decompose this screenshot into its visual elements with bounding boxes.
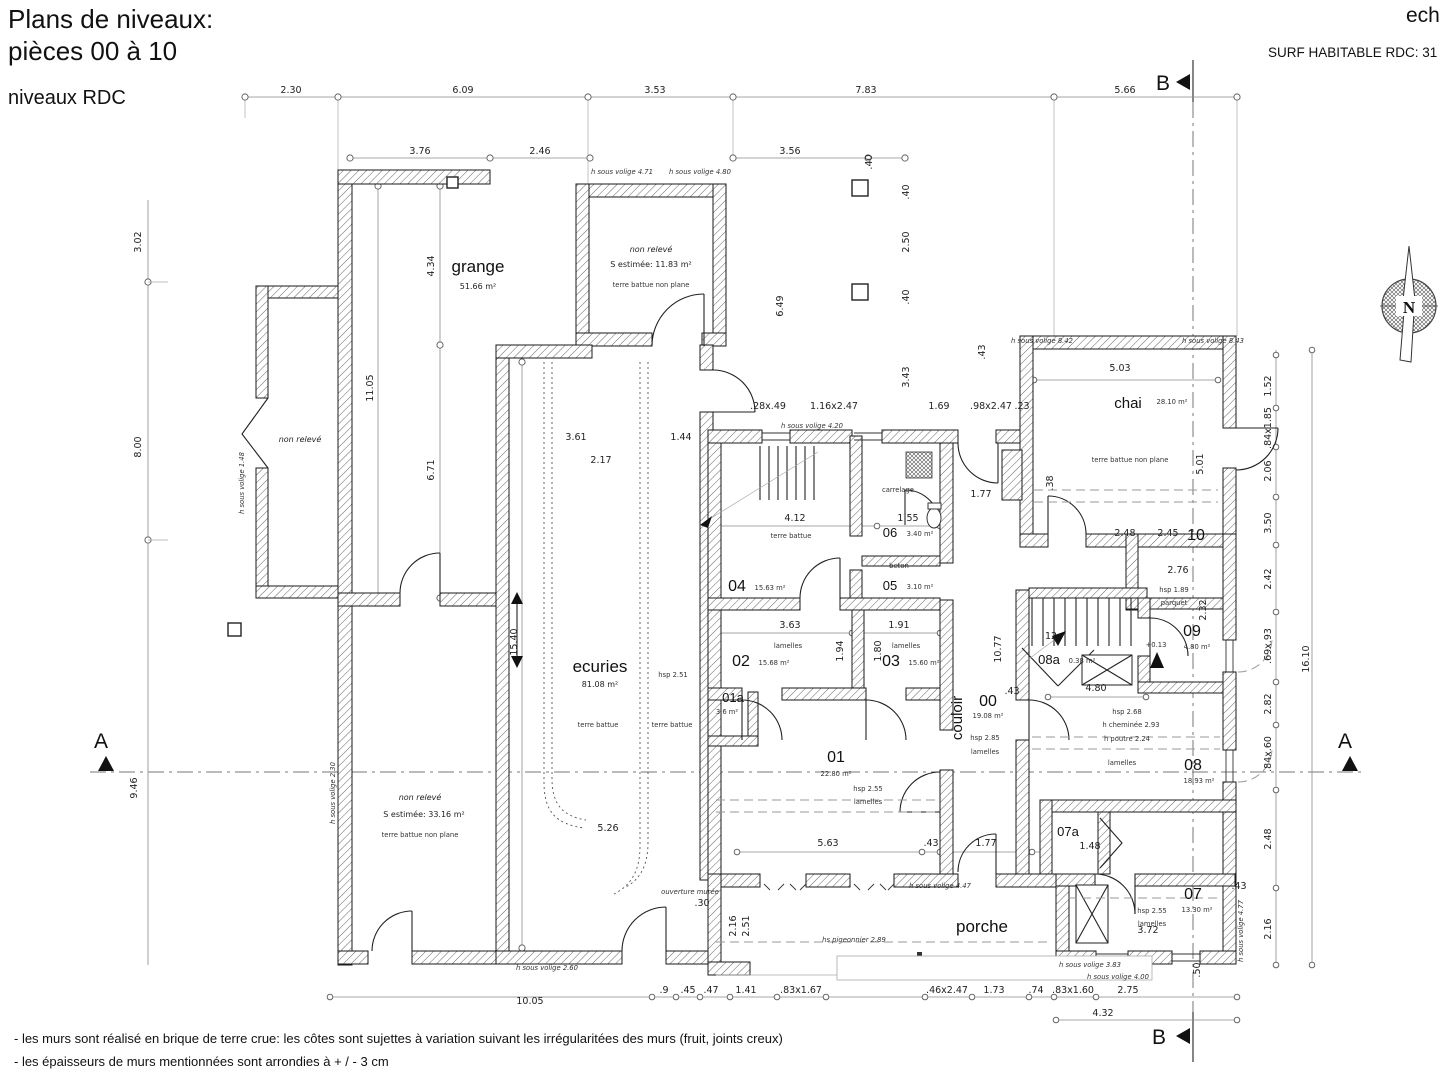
room-name: non relevé <box>279 434 322 444</box>
dimension-label: 2.32 <box>1198 599 1209 620</box>
room-number: 09 <box>1183 623 1201 640</box>
dimension-label: .40 <box>864 154 875 169</box>
room-grange: grange 51.66 m² <box>452 257 505 291</box>
dimension-label: 1.52 <box>1263 375 1274 396</box>
dimension-label: 2.48 <box>1263 828 1274 849</box>
room-ceiling: lamelles <box>892 642 921 650</box>
dimension-label: 2.30 <box>280 85 301 96</box>
floor-plan-sheet: Plans de niveaux: pièces 00 à 10 niveaux… <box>0 0 1440 1080</box>
dimension-label: 1.73 <box>983 985 1004 996</box>
dimension-label: .83x1.67 <box>780 985 822 996</box>
room-number: 00 <box>979 693 997 710</box>
room-number: 01 <box>827 749 845 766</box>
room-hsp: hsp 1.89 <box>1159 586 1188 594</box>
tiled-area-icon <box>906 452 932 478</box>
room-hsp: hsp 2.55 <box>1137 907 1166 915</box>
dimension-label: 1.55 <box>897 513 918 524</box>
room-floor: terre battue non plane <box>613 281 690 289</box>
dimension-label: 2.48 <box>1114 528 1135 539</box>
room-area: 3.40 m² <box>907 530 934 538</box>
room-area: 3.6 m² <box>716 708 739 716</box>
dimension-label: 4.12 <box>784 513 805 524</box>
room-07: 07 13.30 m² hsp 2.55 lamelles <box>1137 886 1212 928</box>
page-title-line2: pièces 00 à 10 <box>8 36 177 66</box>
dimension-label: 1.91 <box>888 620 909 631</box>
room-number: 03 <box>882 653 900 670</box>
dimension-label: 5.01 <box>1195 453 1206 474</box>
walls-layer <box>256 170 1236 975</box>
room-note1: h cheminée 2.93 <box>1102 721 1159 729</box>
dimension-label: 3.61 <box>565 432 586 443</box>
room-03: 03 15.60 m² lamelles <box>882 642 940 670</box>
height-note: h sous volige 4.47 <box>909 882 972 890</box>
height-note: h sous volige 3.83 <box>1059 961 1121 969</box>
dimension-label: 3.63 <box>779 620 800 631</box>
dimension-label: 6.49 <box>775 295 786 316</box>
room-number: 05 <box>883 578 897 593</box>
dimension-label: .45 <box>680 985 695 996</box>
dimension-label: .50 <box>1192 962 1203 977</box>
room-number: 08 <box>1184 757 1202 774</box>
dimension-label: .43 <box>1004 686 1019 697</box>
dimension-label: 5.66 <box>1114 85 1135 96</box>
room-name: grange <box>452 257 505 276</box>
dimension-label: 4.34 <box>426 255 437 276</box>
dimension-label: .84x.60 <box>1263 736 1274 772</box>
room-number: 10 <box>1187 527 1205 544</box>
room-floor: terre battue <box>771 532 812 540</box>
section-b-bottom-arrow-icon <box>1176 1028 1190 1044</box>
dimension-label: .47 <box>703 985 718 996</box>
section-a-right-arrow-icon <box>1342 756 1358 771</box>
north-arrow-icon <box>1403 246 1415 300</box>
dimension-label: 1.48 <box>1079 841 1100 852</box>
room-name: non relevé <box>399 792 442 802</box>
room-hsp: hsp 2.68 <box>1112 708 1141 716</box>
room-floor: terre battue non plane <box>382 831 459 839</box>
height-note: h sous volige 2.30 <box>329 762 337 824</box>
surface-label: SURF HABITABLE RDC: 31 <box>1268 45 1437 60</box>
dimension-label: .83x1.60 <box>1052 985 1094 996</box>
room-chai: chai 28.10 m² terre battue non plane <box>1092 395 1188 464</box>
dimension-label: .74 <box>1028 985 1043 996</box>
room-ceiling: lamelles <box>1108 759 1137 767</box>
dimension-label: 1.77 <box>975 838 996 849</box>
dimension-label: .40 <box>901 289 912 304</box>
dimension-label: 2.45 <box>1157 528 1178 539</box>
room-area: 15.63 m² <box>755 584 786 592</box>
note-line1: - les murs sont réalisé en brique de ter… <box>14 1031 783 1046</box>
room-floor: parquet <box>1161 599 1188 607</box>
section-a-left-label: A <box>94 730 108 753</box>
dimension-label: 2.42 <box>1263 568 1274 589</box>
dimension-label: 1.94 <box>835 640 846 661</box>
dimension-label: 10.05 <box>516 996 543 1007</box>
dimension-label: .98x2.47 <box>970 401 1012 412</box>
room-area: 28.10 m² <box>1157 398 1188 406</box>
dashed-lines-layer <box>716 490 1220 975</box>
dimension-label: 2.75 <box>1117 985 1138 996</box>
dimension-label: .28x.49 <box>750 401 786 412</box>
room-area: 81.08 m² <box>582 680 618 689</box>
dimension-label: 2.76 <box>1167 565 1188 576</box>
room-area: 22.80 m² <box>821 770 852 778</box>
room-name: ecuries <box>573 657 628 676</box>
dimension-label: 2.16 <box>1263 918 1274 939</box>
dimension-label: 2.50 <box>901 231 912 252</box>
dimension-label: 2.51 <box>741 915 752 936</box>
dimension-label: 5.63 <box>817 838 838 849</box>
room-reserve: non relevé S estimée: 33.16 m² terre bat… <box>382 792 465 839</box>
dimension-label: .40 <box>901 184 912 199</box>
room-08a: 08a 0.38 m² <box>1038 652 1095 667</box>
room-area: 15.60 m² <box>909 659 940 667</box>
room-area: 18.93 m² <box>1184 777 1215 785</box>
dimension-label: 1.41 <box>735 985 756 996</box>
chimney-boxes <box>1076 655 1132 943</box>
dimension-label: 4.32 <box>1092 1008 1113 1019</box>
dimension-label: .23 <box>1014 401 1029 412</box>
room-07a: 07a <box>1057 824 1079 839</box>
room-number: 04 <box>728 578 746 595</box>
dimension-label: .43 <box>977 344 988 359</box>
height-note: h sous volige 4.00 <box>1087 973 1149 981</box>
room-04: 04 15.63 m² terre battue <box>728 532 811 595</box>
dimension-label: 5.03 <box>1109 363 1130 374</box>
height-note: h sous volige 4.71 <box>591 168 653 176</box>
arrow-up-icon <box>511 592 523 604</box>
room-area: 19.08 m² <box>973 712 1004 720</box>
dimension-label: .9 <box>659 985 668 996</box>
room-00: 00 19.08 m² hsp 2.85 lamelles <box>970 693 1003 756</box>
dimension-label: 6.09 <box>452 85 473 96</box>
height-note: hs pigeonnier 2.89 <box>822 936 886 944</box>
dimension-label: .46x2.47 <box>926 985 968 996</box>
room-ceiling: lamelles <box>854 798 883 806</box>
note-line2: - les épaisseurs de murs mentionnées son… <box>14 1054 389 1069</box>
dimension-label: 15.40 <box>509 628 520 655</box>
dimension-label: .69x.93 <box>1263 628 1274 664</box>
dimension-label: .30 <box>694 898 709 909</box>
room-number: 06 <box>883 525 897 540</box>
compass-north-label: N <box>1403 298 1416 317</box>
room-number: 07a <box>1057 824 1079 839</box>
dimension-label: 12 <box>1045 631 1057 642</box>
room-09: 09 4.80 m² +0.13 <box>1146 623 1211 651</box>
doors-layer <box>242 294 1278 951</box>
room-number: 02 <box>732 653 750 670</box>
header: Plans de niveaux: pièces 00 à 10 niveaux… <box>8 4 1440 109</box>
room-number: 08a <box>1038 652 1060 667</box>
dimension-label: 2.82 <box>1263 693 1274 714</box>
section-a-left-arrow-icon <box>98 756 114 771</box>
section-b-top-arrow-icon <box>1176 74 1190 90</box>
dimension-label: 1.77 <box>970 489 991 500</box>
room-01: 01 22.80 m² hsp 2.55 lamelles <box>821 749 883 806</box>
toilet-icon <box>927 508 941 528</box>
room-remise: non relevé S estimée: 11.83 m² terre bat… <box>610 244 691 289</box>
dimension-label: 3.53 <box>644 85 665 96</box>
room-floor2: terre battue <box>652 721 693 729</box>
dimension-label: 5.26 <box>597 823 618 834</box>
dimension-label: 3.50 <box>1263 512 1274 533</box>
dimension-label: 4.80 <box>1085 683 1106 694</box>
section-a-right-label: A <box>1338 730 1352 753</box>
room-name: non relevé <box>630 244 673 254</box>
room-hsp: hsp 2.85 <box>970 734 999 742</box>
room-area: 51.66 m² <box>460 282 496 291</box>
height-note: h sous volige 8.43 <box>1182 337 1244 345</box>
dimension-label: 9.46 <box>129 777 140 798</box>
dimension-label: 3.76 <box>409 146 430 157</box>
room-hsp: hsp 2.55 <box>853 785 882 793</box>
room-level: +0.13 <box>1146 641 1167 649</box>
floor-plan-drawing: Plans de niveaux: pièces 00 à 10 niveaux… <box>0 0 1440 1080</box>
room-02: 02 15.68 m² lamelles <box>732 642 803 670</box>
room-area: 3.10 m² <box>907 583 934 591</box>
scale-label: ech <box>1406 4 1440 27</box>
room-floor: carrelage <box>882 486 914 494</box>
room-08: 08 18.93 m² hsp 2.68 h cheminée 2.93 h p… <box>1102 708 1214 785</box>
dimension-label: 8.00 <box>133 436 144 457</box>
room-porche: porche <box>956 917 1008 936</box>
room-ceiling: lamelles <box>971 748 1000 756</box>
room-annexe: non relevé <box>279 434 322 444</box>
room-note2: h poutre 2.24 <box>1104 735 1150 743</box>
room-couloir: couloir <box>949 696 966 740</box>
dimension-label: 16.10 <box>1301 645 1312 672</box>
room-name: chai <box>1114 395 1142 412</box>
room-floor: beton <box>889 562 909 570</box>
dimension-label: 2.16 <box>728 915 739 936</box>
dimension-label: 2.17 <box>590 455 611 466</box>
height-note: h sous volige 2.60 <box>516 964 578 972</box>
page-title-line1: Plans de niveaux: <box>8 4 213 34</box>
room-area: 4.80 m² <box>1184 643 1211 651</box>
room-floor: terre battue <box>578 721 619 729</box>
room-hsp: hsp 2.51 <box>658 671 687 679</box>
height-note: h sous volige 4.20 <box>781 422 843 430</box>
footnotes: - les murs sont réalisé en brique de ter… <box>14 1031 783 1069</box>
dimension-label: 3.02 <box>133 231 144 252</box>
dimension-label: .43 <box>923 838 938 849</box>
dimension-label: .43 <box>1231 881 1246 892</box>
section-b-top-label: B <box>1156 72 1170 95</box>
level-subtitle: niveaux RDC <box>8 87 126 109</box>
dimension-label: 1.44 <box>670 432 691 443</box>
height-note: h sous volige 1.48 <box>238 451 246 514</box>
level-arrow-icon <box>1150 652 1164 668</box>
dimension-label: 7.83 <box>855 85 876 96</box>
room-ecuries: ecuries 81.08 m² terre battue hsp 2.51 t… <box>573 657 693 729</box>
room-area: 13.30 m² <box>1182 906 1213 914</box>
height-note: h sous volige 4.80 <box>669 168 731 176</box>
room-05: 05 3.10 m² beton <box>883 562 934 593</box>
north-compass: N <box>1380 246 1438 362</box>
dimension-label: .38 <box>1045 475 1056 490</box>
room-area: S estimée: 33.16 m² <box>383 809 464 819</box>
dimension-label: 10.77 <box>993 635 1004 662</box>
room-area: 15.68 m² <box>759 659 790 667</box>
room-ceiling: lamelles <box>774 642 803 650</box>
height-note: ouverture murée <box>661 888 719 896</box>
room-number: 01a <box>722 690 744 705</box>
dimension-label: 2.06 <box>1263 460 1274 481</box>
room-area: S estimée: 11.83 m² <box>610 259 691 269</box>
height-notes: h sous volige 4.71h sous volige 4.80h so… <box>238 168 1245 981</box>
room-name: couloir <box>949 696 966 740</box>
dimension-label: 3.56 <box>779 146 800 157</box>
room-name: porche <box>956 917 1008 936</box>
room-floor: terre battue non plane <box>1092 456 1169 464</box>
arrow-down-icon <box>511 656 523 668</box>
room-number: 07 <box>1184 886 1202 903</box>
height-note: h sous volige 4.77 <box>1237 899 1245 962</box>
dimension-label: 1.80 <box>873 640 884 661</box>
dimension-label: 6.71 <box>426 459 437 480</box>
section-b-bottom-label: B <box>1152 1026 1166 1049</box>
dimension-label: .84x1.85 <box>1263 407 1274 449</box>
dimension-label: 3.72 <box>1137 925 1158 936</box>
dimension-label: 3.43 <box>901 366 912 387</box>
level-marker <box>1150 652 1164 668</box>
height-note: h sous volige 8.42 <box>1011 337 1073 345</box>
dimension-label: 11.05 <box>365 374 376 401</box>
room-area: 0.38 m² <box>1069 657 1096 665</box>
dimension-label: 1.69 <box>928 401 949 412</box>
dimension-label: 2.46 <box>529 146 550 157</box>
dimension-label: 1.16x2.47 <box>810 401 858 412</box>
